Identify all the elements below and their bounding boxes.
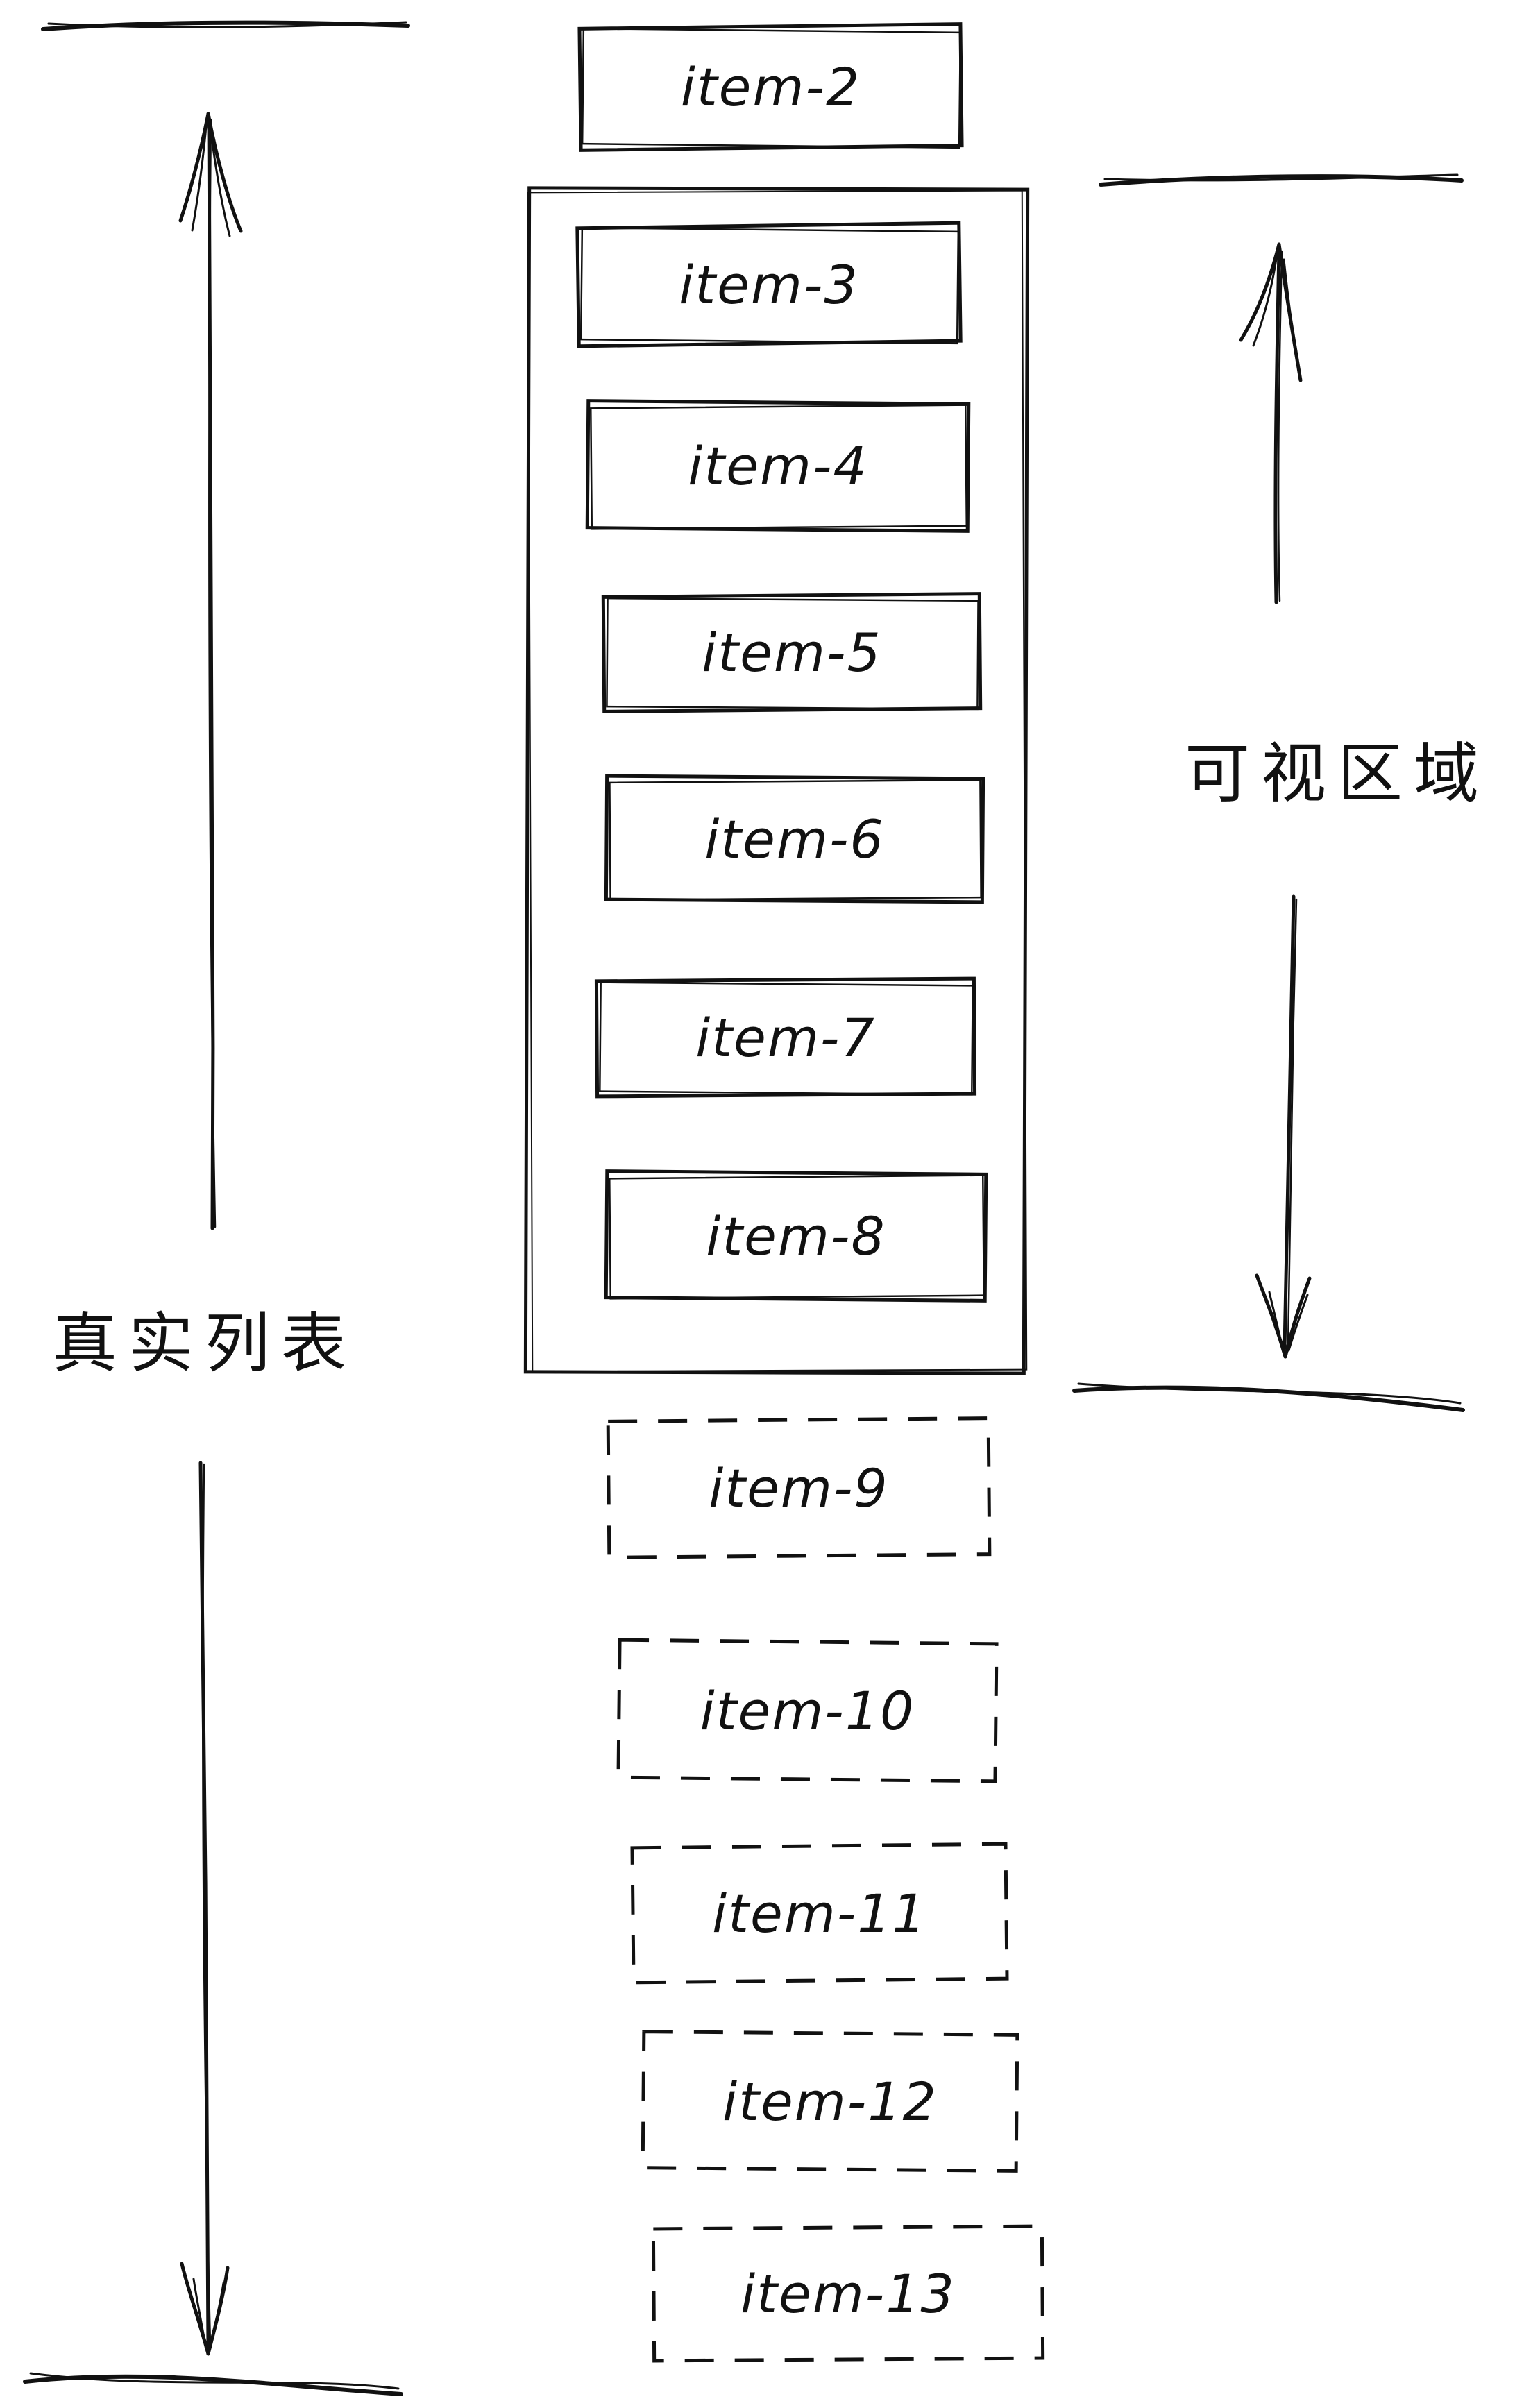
real-list-arrow-up: [180, 114, 241, 1228]
list-item-label: item-11: [633, 1846, 1006, 1981]
list-item-label: item-8: [607, 1173, 985, 1299]
list-item-label: item-13: [654, 2228, 1042, 2359]
virtual-list-diagram: item-2 item-3 item-4 item-5 item-6 item-…: [0, 0, 1515, 2408]
list-item-label: item-9: [609, 1420, 989, 1556]
real-list-bottom-line: [25, 2373, 401, 2394]
visible-area-top-line: [1101, 175, 1462, 185]
list-item-label: item-7: [597, 980, 974, 1095]
visible-area-label: 可视区域: [1188, 723, 1487, 813]
visible-area-bottom-line: [1074, 1384, 1463, 1410]
real-list-arrow-down: [182, 1463, 228, 2354]
list-item-label: item-10: [619, 1642, 996, 1779]
list-item-label: item-3: [578, 226, 960, 344]
list-item-label: item-2: [580, 26, 961, 148]
list-item-label: item-5: [604, 595, 980, 710]
list-item-label: item-12: [643, 2033, 1017, 2169]
real-list-label: 真实列表: [52, 1296, 357, 1380]
list-item-label: item-4: [588, 402, 968, 529]
visible-area-arrow-down: [1257, 897, 1310, 1357]
visible-area-arrow-up: [1241, 244, 1301, 602]
real-list-top-line: [43, 22, 408, 29]
list-item-label: item-6: [607, 777, 983, 901]
